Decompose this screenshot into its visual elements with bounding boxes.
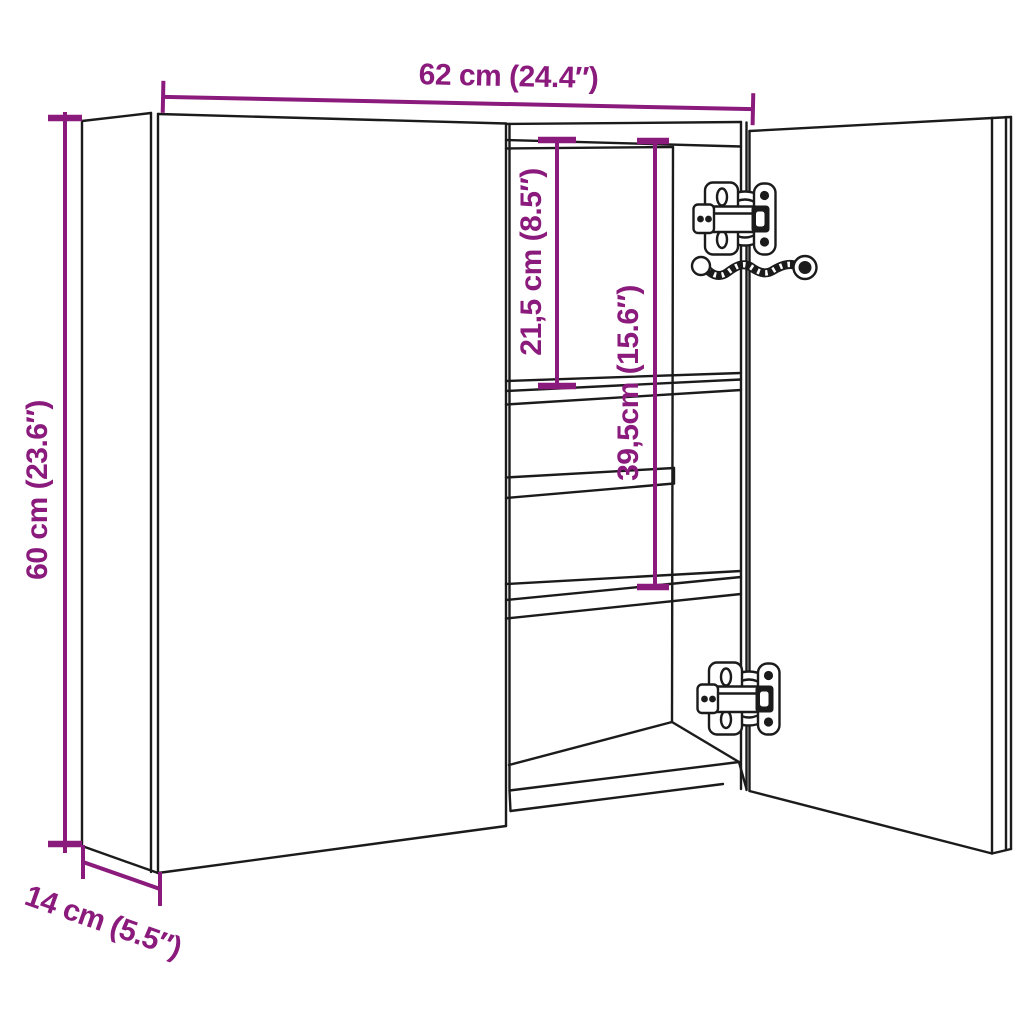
- top-hinge: [694, 183, 776, 255]
- top-back-edge: [506, 147, 673, 149]
- left-door-face: [82, 113, 506, 873]
- back-right-corner: [672, 147, 673, 722]
- right-door-edge-top: [992, 117, 1011, 118]
- height-dimension-label: 60 cm (23.6″): [21, 400, 54, 580]
- product-diagram-canvas: 62 cm (24.4″) 60 cm (23.6″) 14 cm (5.5″)…: [0, 0, 1024, 1024]
- lower-shelf: [506, 571, 741, 619]
- width-dimension-label: 62 cm (24.4″): [418, 58, 598, 95]
- middle-shelf-dimension: 39,5cm (15.6″): [612, 141, 669, 587]
- width-dimension-line: [163, 97, 753, 109]
- cable-plug: [799, 261, 812, 274]
- top-front-edge: [506, 122, 741, 124]
- right-door-face: [750, 117, 1012, 854]
- bottom-hinge: [698, 663, 780, 735]
- cabinet-dimension-diagram: 62 cm (24.4″) 60 cm (23.6″) 14 cm (5.5″)…: [0, 0, 1024, 1024]
- middle-shelf: [506, 468, 674, 498]
- right-door: [750, 117, 1012, 854]
- middle-shelf-dimension-label: 39,5cm (15.6″): [612, 285, 645, 481]
- left-door: [82, 113, 506, 873]
- height-dimension: 60 cm (23.6″): [21, 112, 82, 853]
- cable-end-loop: [692, 257, 710, 275]
- width-dimension: 62 cm (24.4″): [163, 53, 754, 125]
- top-shelf-dimension: 21,5 cm (8.5″): [515, 140, 576, 386]
- bottom-panel: [509, 722, 747, 811]
- top-shelf-dimension-label: 21,5 cm (8.5″): [515, 168, 548, 355]
